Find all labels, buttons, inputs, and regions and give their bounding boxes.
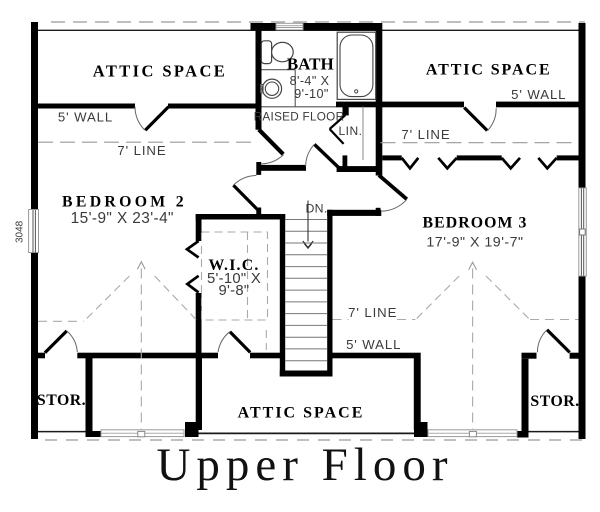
svg-text:BEDROOM 2: BEDROOM 2 bbox=[62, 194, 187, 211]
svg-text:9'-10": 9'-10" bbox=[294, 87, 328, 101]
svg-text:BATH: BATH bbox=[287, 55, 334, 74]
svg-text:3048: 3048 bbox=[15, 220, 26, 243]
svg-text:LIN.: LIN. bbox=[338, 124, 362, 138]
svg-text:RAISED FLOOR: RAISED FLOOR bbox=[254, 111, 345, 124]
svg-text:Upper Floor: Upper Floor bbox=[156, 439, 453, 491]
svg-text:DN.: DN. bbox=[305, 201, 327, 215]
svg-text:7' LINE: 7' LINE bbox=[117, 143, 166, 158]
svg-text:STOR.: STOR. bbox=[530, 393, 579, 410]
svg-text:BEDROOM 3: BEDROOM 3 bbox=[422, 215, 527, 232]
svg-text:STOR.: STOR. bbox=[37, 392, 86, 409]
svg-text:15'-9" X 23'-4": 15'-9" X 23'-4" bbox=[71, 210, 174, 227]
svg-text:ATTIC SPACE: ATTIC SPACE bbox=[238, 404, 365, 421]
svg-text:ATTIC SPACE: ATTIC SPACE bbox=[93, 62, 227, 81]
svg-text:ATTIC SPACE: ATTIC SPACE bbox=[426, 62, 552, 79]
svg-text:5' WALL: 5' WALL bbox=[346, 337, 401, 352]
svg-text:7' LINE: 7' LINE bbox=[401, 127, 450, 142]
svg-text:9'-8": 9'-8" bbox=[219, 283, 250, 299]
svg-text:5' WALL: 5' WALL bbox=[511, 87, 566, 102]
svg-text:17'-9" X 19'-7": 17'-9" X 19'-7" bbox=[426, 235, 523, 251]
svg-text:5' WALL: 5' WALL bbox=[58, 110, 113, 125]
svg-text:7' LINE: 7' LINE bbox=[348, 305, 397, 320]
